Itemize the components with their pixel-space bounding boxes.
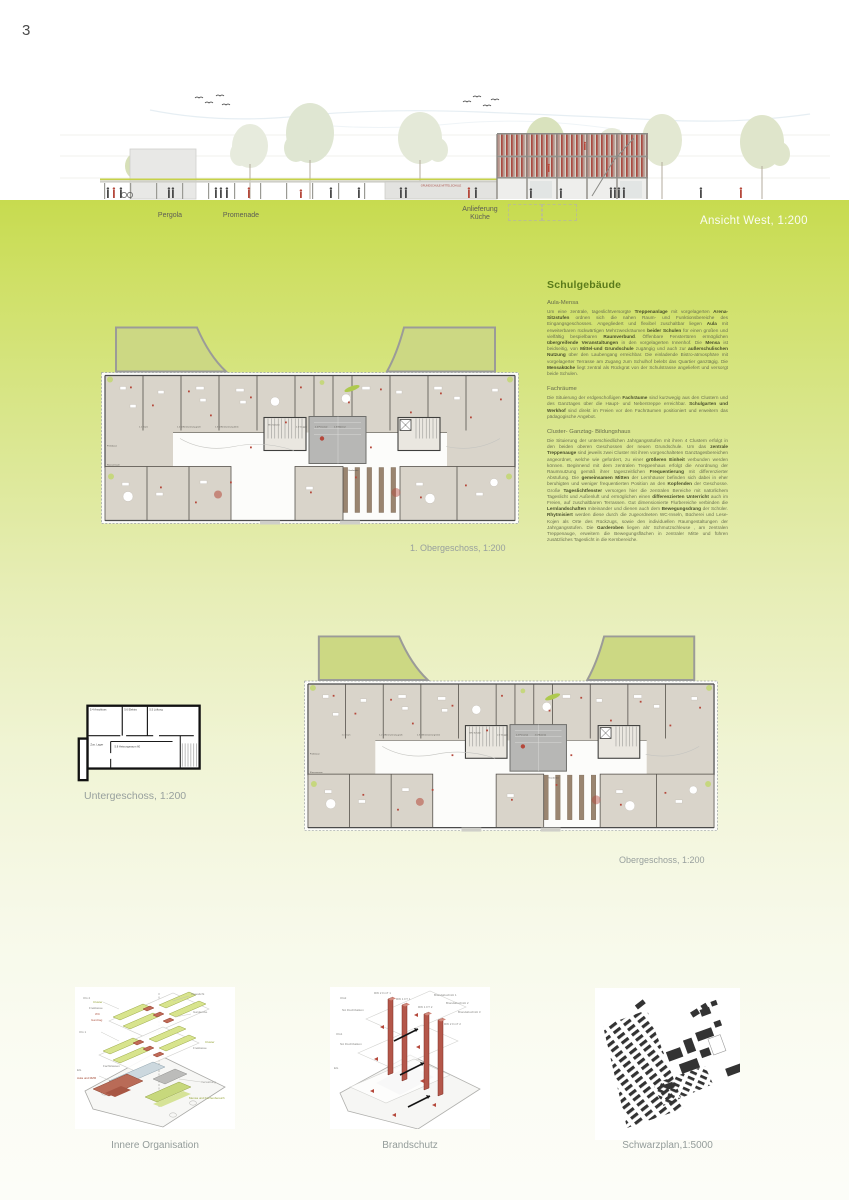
- diagram-brandschutz-caption: Brandschutz: [330, 1140, 490, 1151]
- label-anlieferung-kueche: Anlieferung Küche: [455, 206, 505, 222]
- school-building-volume: [497, 133, 648, 199]
- label-brandabschnitt: Brandabschnitt 1: [434, 993, 457, 997]
- basement-room-label: 5.8 Heizungsraum 60: [115, 744, 141, 748]
- plan-upper-floor: [303, 633, 719, 836]
- page-number: 3: [22, 22, 30, 39]
- west-elevation-drawing: GRUNDSCHULE MITTELSCHULE: [0, 88, 849, 200]
- project-description: Schulgebäude Aula-Mensa Um eine zentrale…: [547, 279, 728, 544]
- section-body: Die Situierung der unterschiedlichen Jah…: [547, 438, 728, 543]
- label-na: NA Fluchtbalkon: [340, 1042, 362, 1046]
- label-tageslicht: Tageslicht: [191, 992, 205, 996]
- facade-signage: GRUNDSCHULE MITTELSCHULE: [421, 183, 462, 187]
- label-aula: Aula und MZR: [77, 1076, 97, 1080]
- basement-room-label: 5.6 Elektro: [124, 708, 137, 712]
- plan-basement: 5.4 Anschluss 5.6 Elektro 5.5 Lüftung Zu…: [72, 695, 217, 787]
- label-promenade: Promenade: [216, 212, 266, 220]
- plan-upper-caption: Obergeschoss, 1:200: [619, 855, 705, 865]
- label-wc: WC: [95, 1012, 101, 1016]
- level-label: OG 1: [79, 1030, 87, 1034]
- section-body: Um eine zentrale, tageslichtversorgte Tr…: [547, 309, 728, 377]
- label-brandabschnitt: Brandabschnitt 3: [458, 1010, 481, 1014]
- underground-outline: [542, 204, 577, 221]
- plan-first-upper-caption: 1. Obergeschoss, 1:200: [410, 543, 506, 553]
- label-fachklassen: Fachklassen: [103, 1064, 120, 1068]
- label-ganztag: Ganztag: [91, 1018, 103, 1022]
- label-kueche: Küche: [470, 214, 490, 221]
- label-anlieferung: Anlieferung: [462, 206, 497, 213]
- level-label: EG: [77, 1068, 82, 1072]
- label-garderobe: Garderobe: [193, 1010, 208, 1014]
- label-verwaltung: Verwaltung: [201, 1080, 216, 1084]
- label-cluster: Cluster: [205, 1040, 215, 1044]
- level-label: EG: [334, 1066, 339, 1070]
- basement-room-label: Zus. Lager: [90, 742, 103, 746]
- label-na: NA Fluchtbalkon: [342, 1008, 364, 1012]
- section-heading: Aula-Mensa: [547, 300, 728, 306]
- label-rw: RW 2 FmT 1: [374, 991, 391, 995]
- basement-room-label: 5.4 Anschluss: [90, 708, 107, 712]
- diagram-brandschutz: OG2 OG1 EG RW 2 FmT 1 RW 1 FT 1 RW 1 FT …: [330, 987, 490, 1129]
- figure-ground-hatch: [603, 1010, 685, 1128]
- basement-room-label: 5.5 Lüftung: [149, 708, 163, 712]
- label-rw: RW 2 FmT 2: [444, 1022, 461, 1026]
- birds: [195, 95, 499, 106]
- section-body: Die Situierung der erdgeschoßigen Fachrä…: [547, 395, 728, 420]
- level-label: OG2: [340, 996, 347, 1000]
- level-label: OG1: [336, 1032, 343, 1036]
- level-label: OG 2: [83, 996, 91, 1000]
- label-rw: RW 1 FT 1: [396, 997, 411, 1001]
- label-freiklasse: Freiklasse: [193, 1046, 207, 1050]
- section-heading: Fachräume: [547, 386, 728, 392]
- section-heading: Cluster- Ganztag- Bildungshaus: [547, 429, 728, 435]
- competition-board: 3: [0, 0, 849, 1200]
- diagram-innere-organisation: OG 2 OG 1 EG Tageslicht Garderobe Freikl…: [75, 987, 235, 1129]
- label-freiklasse: Freiklasse: [89, 1006, 103, 1010]
- article-title: Schulgebäude: [547, 279, 728, 291]
- plan-basement-caption: Untergeschoss, 1:200: [84, 790, 186, 802]
- label-mensa: Mensa und Küchenbereich: [189, 1096, 225, 1100]
- label-brandabschnitt: Brandabschnitt 2: [446, 1001, 469, 1005]
- label-pergola: Pergola: [148, 212, 192, 220]
- elevation-caption: Ansicht West, 1:200: [700, 215, 808, 227]
- diagram-innere-caption: Innere Organisation: [75, 1140, 235, 1151]
- plan-first-upper-floor: [100, 324, 520, 529]
- label-rw: RW 1 FT 2: [418, 1005, 433, 1009]
- diagram-schwarzplan: [595, 988, 740, 1140]
- diagram-schwarzplan-caption: Schwarzplan,1:5000: [595, 1140, 740, 1151]
- label-cluster: Cluster: [93, 1000, 103, 1004]
- underground-outline: [508, 204, 542, 221]
